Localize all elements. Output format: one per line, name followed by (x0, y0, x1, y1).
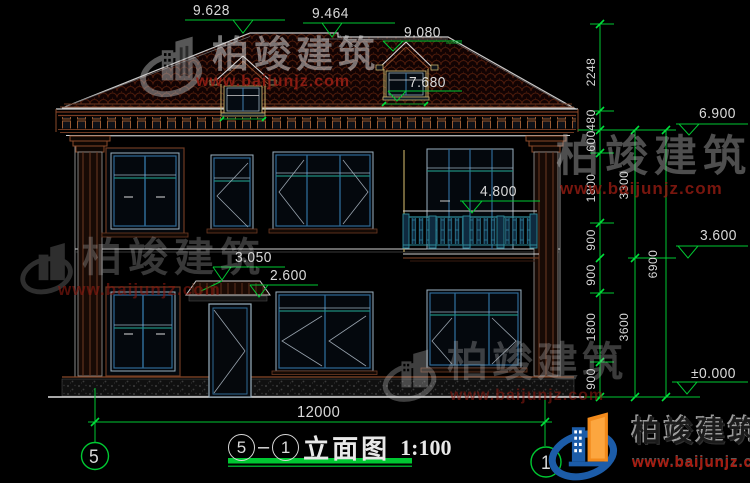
dim-seg-900b: 900 (585, 264, 597, 286)
brand-url: www.baijunjz.com (632, 455, 750, 470)
brand-logotype: 柏竣建筑 (632, 418, 750, 447)
watermark-url-bottom: www.baijunjz.com (450, 388, 604, 404)
dim-elev-floor2: 3.600 (700, 228, 737, 243)
watermark-logo-icon (381, 344, 443, 406)
dim-elev-balcony: 4.800 (480, 184, 517, 199)
dim-seg-6900: 6900 (647, 250, 659, 279)
dim-elev-dormer-top: 9.080 (404, 25, 441, 40)
dim-elev-ground: ±0.000 (691, 366, 736, 381)
title-separator: – (258, 436, 269, 459)
watermark-brand-bottom: 柏竣建筑 (447, 342, 627, 383)
watermark-url-right: www.baijunjz.com (560, 180, 723, 197)
dim-seg-1800b: 1800 (585, 313, 597, 342)
drawing-title: 5 – 1 立面图 1:100 (228, 429, 451, 466)
dim-elev-ridge: 9.628 (193, 3, 230, 18)
window-2f-wide (269, 152, 377, 233)
dim-seg-3600: 3600 (618, 313, 630, 342)
dim-elev-dormer-eave: 7.680 (409, 75, 446, 90)
title-name: 立面图 (303, 429, 390, 466)
window-2f-left (102, 148, 188, 237)
watermark-url-mid: www.baijunjz.com (58, 281, 221, 298)
dim-elev-eave: 6.900 (699, 106, 736, 121)
dim-seg-2248: 2248 (585, 58, 597, 87)
balcony (403, 149, 539, 261)
watermark-brand-mid: 柏竣建筑 (82, 238, 266, 278)
watermark-brand-right: 柏竣建筑 (556, 136, 750, 179)
cad-elevation-drawing: 9.628 9.464 9.080 7.680 4.800 3.050 2.60… (0, 0, 750, 483)
title-axis-from: 5 (228, 434, 255, 461)
window-1f-middle (272, 292, 377, 375)
dim-overall-width: 12000 (297, 405, 340, 421)
window-2f-narrow (207, 155, 257, 233)
title-scale: 1:100 (400, 435, 451, 461)
watermark-brand-top: 柏竣建筑 (212, 36, 380, 73)
baijun-logo-icon (542, 410, 630, 482)
axis-label-5: 5 (89, 448, 99, 467)
dim-seg-480: 480 (585, 109, 597, 131)
dim-elev-ridge2: 9.464 (312, 6, 349, 21)
watermark-url-top: www.baijunjz.com (196, 74, 350, 90)
dim-elev-canopy-btm: 2.600 (270, 268, 307, 283)
cornice (56, 109, 578, 136)
dim-seg-900a: 900 (585, 229, 597, 251)
window-1f-left (106, 287, 180, 376)
title-axis-to: 1 (272, 434, 299, 461)
